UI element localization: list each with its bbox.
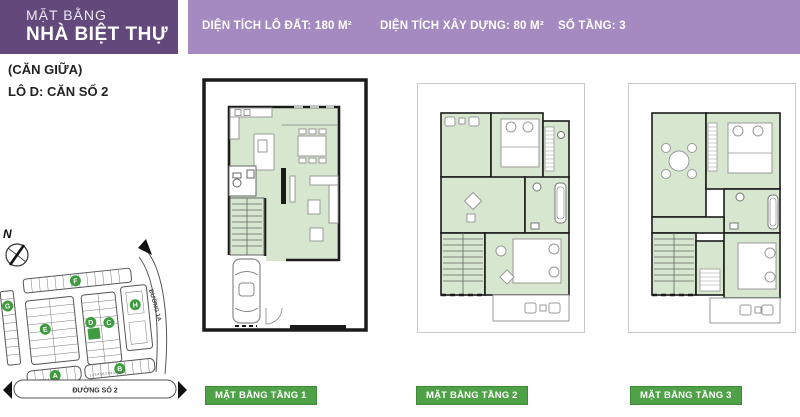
unit-position-label: (CĂN GIỮA) — [8, 62, 82, 77]
closet-icon — [700, 269, 720, 291]
plan3-label: MẶT BẰNG TẦNG 3 — [630, 386, 742, 405]
plan2-label: MẶT BẰNG TẦNG 2 — [416, 386, 528, 405]
page-title-line2: NHÀ BIỆT THỰ — [26, 24, 178, 46]
info-build-area: DIỆN TÍCH XÂY DỰNG: 80 M² — [380, 20, 544, 32]
wc-icon — [229, 166, 256, 196]
wardrobe-icon — [545, 127, 554, 171]
plan1-label: MẶT BẰNG TẦNG 1 — [205, 386, 317, 405]
info-lot-area: DIỆN TÍCH LÔ ĐẤT: 180 M² — [202, 20, 352, 32]
bed-top-icon — [728, 123, 772, 173]
car-icon — [233, 259, 260, 323]
highlighted-lot — [87, 328, 100, 340]
block-c-label: C — [106, 320, 112, 327]
dining-table-icon — [298, 129, 326, 163]
balcony-chairs-icon — [740, 305, 773, 315]
bed-master-icon — [501, 119, 539, 167]
page-title: MẶT BẰNG NHÀ BIỆT THỰ — [0, 0, 178, 54]
lot-label: LÔ D: CĂN SỐ 2 — [8, 84, 108, 99]
road-arrow-right-icon — [178, 381, 187, 399]
info-floors: SỐ TẦNG: 3 — [558, 20, 626, 32]
tv-console — [290, 176, 295, 202]
stairs-icon — [230, 198, 264, 255]
front-gate — [290, 325, 346, 329]
road-bottom: ĐƯỜNG SỐ 2 — [3, 380, 187, 399]
partition-wall — [281, 168, 286, 204]
page-title-line1: MẶT BẰNG — [26, 7, 178, 23]
floor-plan-1 — [202, 78, 368, 332]
info-bar: DIỆN TÍCH LÔ ĐẤT: 180 M² DIỆN TÍCH XÂY D… — [188, 0, 800, 54]
road-arrow-up-icon — [138, 239, 152, 255]
block-h-label: H — [132, 302, 138, 309]
road-arrow-left-icon — [3, 381, 12, 399]
compass-icon: N — [3, 227, 28, 266]
villa-floorplan-page: MẶT BẰNG NHÀ BIỆT THỰ DIỆN TÍCH LÔ ĐẤT: … — [0, 0, 800, 417]
site-map: N ĐƯỜNG 1A — [0, 224, 195, 406]
compass-n-label: N — [3, 227, 12, 241]
floor-plan-2 — [417, 83, 585, 333]
blocks-group: A B C D E F G H 10 9 8 7 6 5 4 3 2 1 1 2… — [0, 267, 155, 388]
block-d-label: D — [88, 320, 94, 327]
wardrobe-icon — [708, 123, 717, 171]
balcony-bottom-chairs-icon — [525, 303, 560, 313]
floor-plan-3 — [628, 83, 796, 333]
bed-bottom-icon — [738, 243, 776, 289]
